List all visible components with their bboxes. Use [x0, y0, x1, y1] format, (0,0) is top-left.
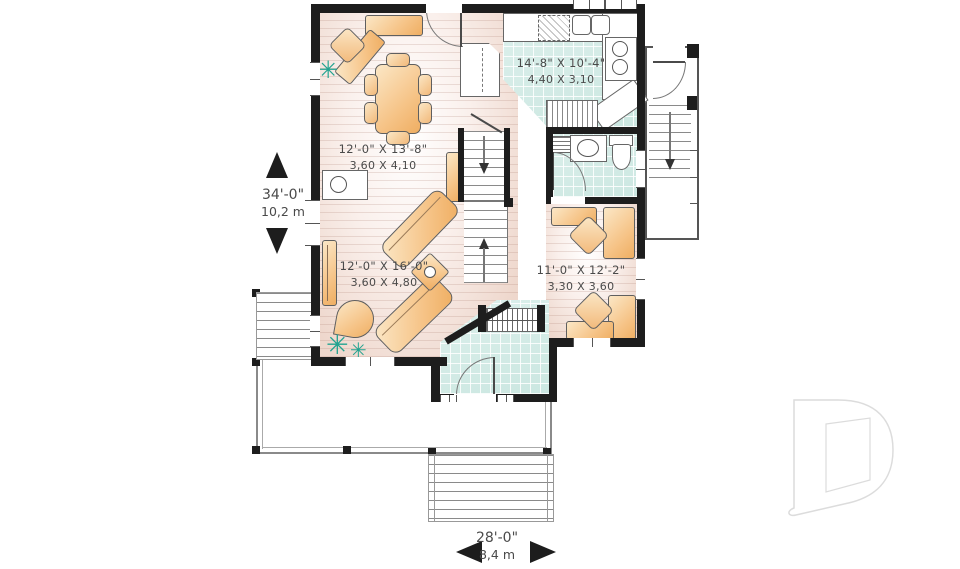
annex-arrow-line [669, 112, 671, 160]
dining-chair [418, 102, 432, 124]
dishwasher [538, 15, 570, 41]
living-label: 12'-0" X 16'-0" 3,60 X 4,80 [328, 258, 440, 291]
annex-corner-stub [687, 96, 697, 110]
front-steps-rail [547, 455, 548, 521]
front-sidelight [497, 395, 514, 402]
living-dims-imperial: 12'-0" X 16'-0" [328, 258, 440, 275]
dining-label: 12'-0" X 13'-8" 3,60 X 4,10 [328, 141, 438, 174]
dining-dims-metric: 3,60 X 4,10 [328, 158, 438, 174]
drummond-logo [786, 392, 906, 522]
dining-table [375, 64, 421, 134]
floor-plan: ✳ ✳ ✳ 14'-8" X 10'-4" 4,40 X 3,10 [0, 0, 960, 569]
deck-railing-bottom-inner [262, 447, 547, 448]
kitchen-window [605, 0, 637, 9]
refrigerator-door-line [482, 48, 483, 92]
front-sidelight [440, 395, 457, 402]
annex-corner-stub [687, 44, 699, 58]
wall-stairs-left [458, 128, 464, 202]
width-meters: 8,4 m [452, 547, 542, 563]
kitchen-sink [572, 15, 591, 35]
deck-railing-right-inner [545, 400, 546, 448]
sideboard-sink-icon [330, 176, 347, 193]
kitchen-window [573, 0, 605, 9]
refrigerator [460, 43, 500, 97]
office-window-east [636, 258, 645, 300]
stairs-down-arrow-icon [479, 163, 489, 174]
office-label: 11'-0" X 12'-2" 3,30 X 3,60 [527, 262, 635, 295]
plant-icon: ✳ [318, 56, 338, 84]
dimension-width: 28'-0" 8,4 m [452, 529, 542, 563]
stairs-down-arrow-line [483, 136, 485, 164]
kitchen-sink [591, 15, 610, 35]
office-dims-imperial: 11'-0" X 12'-2" [527, 262, 635, 279]
closet-wall-stub [478, 305, 486, 332]
dining-chair [418, 74, 432, 96]
front-steps-rail [434, 455, 435, 521]
office-window-south [573, 338, 611, 347]
porch-side-steps [256, 292, 314, 360]
dining-chair [364, 74, 378, 96]
office-dims-metric: 3,30 X 3,60 [527, 279, 635, 295]
bath-sink-icon [577, 139, 599, 157]
height-meters: 10,2 m [238, 204, 328, 220]
dim-arrow-down-icon [266, 228, 288, 254]
closet-wall-stub [537, 305, 545, 332]
back-door-opening [426, 4, 462, 13]
dining-chair [386, 53, 410, 67]
kitchen-dims-metric: 4,40 X 3,10 [500, 72, 622, 88]
deck-post [252, 446, 260, 454]
wall-foyer-right [549, 338, 557, 402]
dimension-height: 34'-0" 10,2 m [238, 186, 328, 220]
wall-stairs-stub [504, 198, 513, 207]
bath-door-opening [551, 197, 585, 204]
wall-bath-top [546, 127, 637, 134]
dim-arrow-right-icon [530, 541, 556, 563]
toilet-bowl-icon [612, 144, 631, 170]
dining-dims-imperial: 12'-0" X 13'-8" [328, 141, 438, 158]
kitchen-dims-imperial: 14'-8" X 10'-4" [500, 55, 622, 72]
dining-chair [364, 102, 378, 124]
living-window-south [345, 357, 395, 366]
front-door-opening [454, 394, 496, 402]
dining-window [310, 62, 320, 96]
back-door [460, 10, 462, 47]
deck-post [343, 446, 351, 454]
bath-window [636, 150, 645, 188]
wall-left [311, 4, 320, 366]
height-feet: 34'-0" [238, 186, 328, 204]
kitchen-label: 14'-8" X 10'-4" 4,40 X 3,10 [500, 55, 622, 88]
front-door [493, 357, 495, 394]
front-steps [428, 454, 554, 522]
stairs-up-arrow-line [483, 248, 485, 282]
wall-bath-left [546, 127, 553, 204]
living-window [310, 315, 320, 347]
dim-arrow-up-icon [266, 152, 288, 178]
living-dims-metric: 3,60 X 4,80 [328, 275, 440, 291]
office-desk-top-return [603, 207, 635, 259]
annex-window [690, 150, 697, 204]
annex-down-arrow-icon [665, 159, 675, 170]
deck-railing-right [550, 400, 552, 454]
width-feet: 28'-0" [452, 529, 542, 547]
wall-stairs-right [504, 128, 510, 202]
stair-landing-line [462, 200, 508, 202]
annex-door-opening [653, 44, 685, 50]
